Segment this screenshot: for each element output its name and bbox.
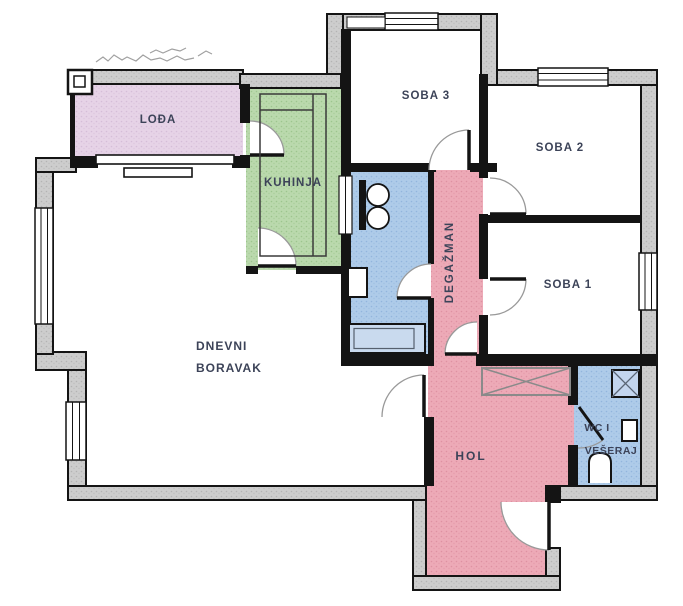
wall-bath-degazman-b bbox=[428, 298, 434, 354]
wall-bottom-right bbox=[560, 486, 657, 500]
door-soba3 bbox=[429, 130, 469, 170]
label-hall: HOL bbox=[455, 449, 486, 463]
wall-soba1-soba2-divider bbox=[488, 215, 641, 223]
window-frame bbox=[35, 208, 53, 324]
washbasin-bowl bbox=[367, 207, 389, 229]
floor-plan: LOĐA KUHINJA SOBA 3 SOBA 2 SOBA 1 DEGAŽM… bbox=[0, 0, 683, 606]
wall-hall-wc-b bbox=[568, 445, 578, 486]
washbasin-console bbox=[359, 180, 366, 230]
wall-bottom-main bbox=[68, 486, 426, 500]
wall-entry-bottom bbox=[413, 576, 560, 590]
boiler bbox=[348, 268, 367, 297]
handwritten-annotation bbox=[96, 48, 212, 62]
wall-kitchen-bottom-b bbox=[296, 266, 343, 274]
door-swing-area bbox=[382, 375, 424, 417]
scribble-line bbox=[198, 51, 212, 56]
wall-living-hall bbox=[424, 417, 434, 486]
bathtub bbox=[349, 324, 425, 353]
label-bedroom1: SOBA 1 bbox=[544, 279, 592, 291]
wall-soba3-bottom-a bbox=[341, 163, 436, 172]
floor-plan-canvas: LOĐA KUHINJA SOBA 3 SOBA 2 SOBA 1 DEGAŽM… bbox=[0, 0, 683, 606]
label-living-line2: BORAVAK bbox=[196, 361, 262, 375]
label-bedroom2: SOBA 2 bbox=[536, 142, 584, 154]
window-frame bbox=[66, 402, 86, 460]
wall-loggia-kitchen-a bbox=[240, 84, 250, 123]
wall-kitchen-top bbox=[240, 74, 341, 88]
label-loggia: LOĐA bbox=[140, 114, 177, 126]
wall-degazman-right-b bbox=[479, 214, 488, 279]
label-living-line1: DNEVNI bbox=[196, 339, 247, 353]
wall-degazman-right-c bbox=[479, 315, 488, 358]
window-soba2 bbox=[538, 68, 608, 86]
wall-loggia-parapet bbox=[68, 70, 243, 84]
window-frame bbox=[385, 13, 438, 30]
wall-degazman-right-a bbox=[479, 74, 488, 178]
label-wc-line2: VEŠERAJ bbox=[585, 444, 638, 457]
washing-machine bbox=[612, 370, 639, 397]
wall-bath-bottom bbox=[341, 354, 434, 366]
wall-entry-left bbox=[413, 500, 426, 576]
window-right bbox=[639, 253, 657, 310]
window-soba3 bbox=[385, 13, 438, 30]
label-kitchen: KUHINJA bbox=[264, 177, 322, 189]
label-bedroom3: SOBA 3 bbox=[402, 90, 450, 102]
door-soba2 bbox=[490, 178, 526, 214]
wall-entry-jamb bbox=[546, 486, 560, 502]
sliding-panel-upper bbox=[96, 155, 234, 164]
window-frame bbox=[538, 68, 608, 86]
door-soba1 bbox=[490, 279, 526, 315]
scribble-line bbox=[96, 55, 194, 62]
washbasin-bowl bbox=[367, 184, 389, 206]
scribble-line bbox=[150, 48, 186, 53]
window-living-left-low bbox=[66, 402, 86, 460]
wardrobe bbox=[482, 368, 570, 395]
wall-soba1-bottom bbox=[476, 354, 657, 366]
pillar-inner bbox=[74, 76, 85, 87]
wall-kitchen-bottom-a bbox=[246, 266, 258, 274]
toilet bbox=[589, 453, 611, 483]
cistern bbox=[622, 420, 637, 441]
window-living-left-up bbox=[35, 208, 53, 324]
sliding-panel-lower bbox=[124, 168, 192, 177]
window-soba3-side bbox=[347, 17, 385, 28]
wall-bath-degazman-a bbox=[428, 172, 434, 264]
window-kitchen-bath-pass bbox=[339, 176, 352, 234]
wall-stub-left bbox=[70, 156, 98, 168]
label-wc-line1: WC I bbox=[584, 422, 609, 434]
window-frame bbox=[639, 253, 657, 310]
pillar bbox=[68, 70, 92, 94]
label-degazman: DEGAŽMAN bbox=[443, 221, 456, 303]
sliding-door-loggia bbox=[70, 155, 245, 177]
door-living-hall bbox=[382, 375, 424, 417]
